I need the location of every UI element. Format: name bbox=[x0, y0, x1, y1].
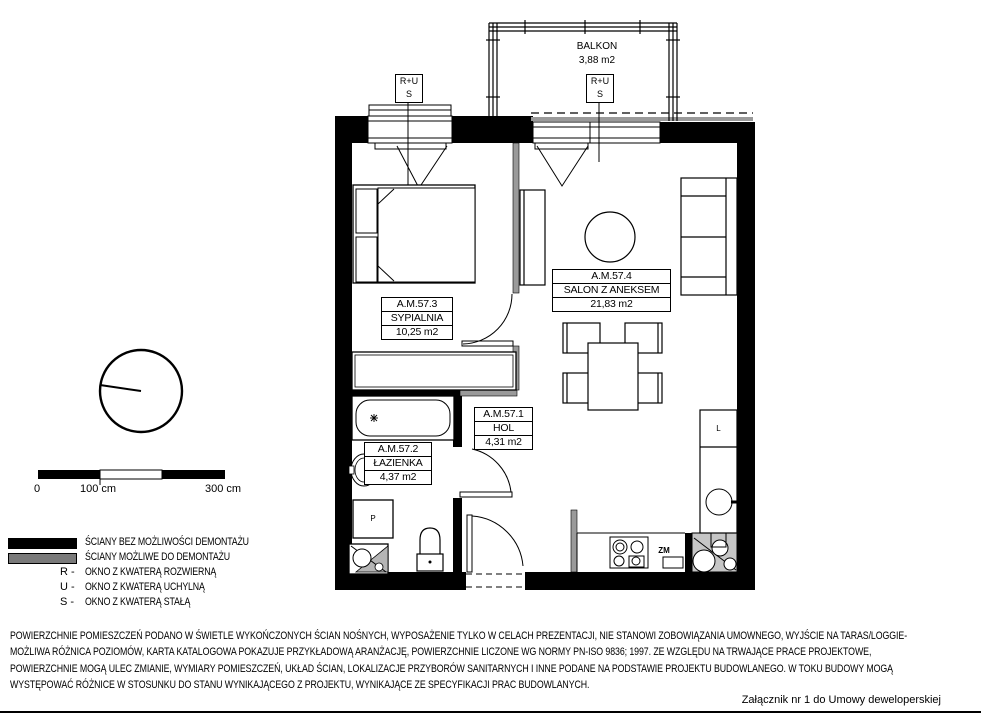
balcony-area: 3,88 m2 bbox=[555, 55, 639, 66]
bathtub bbox=[352, 396, 454, 440]
legend-text-r: OKNO Z KWATERĄ ROZWIERNĄ bbox=[85, 566, 216, 578]
balcony-label: BALKON bbox=[555, 41, 639, 52]
scale-label-100: 100 cm bbox=[80, 483, 116, 495]
attachment-note: Załącznik nr 1 do Umowy deweloperskiej bbox=[735, 694, 941, 706]
bedroom-window bbox=[368, 105, 452, 149]
room-id: A.M.57.4 bbox=[553, 270, 670, 283]
window-tag-left-bottom: S bbox=[396, 88, 422, 101]
room-area: 4,37 m2 bbox=[365, 470, 431, 484]
room-id: A.M.57.2 bbox=[365, 443, 431, 456]
room-name: HOL bbox=[475, 421, 532, 435]
balcony-railing bbox=[486, 20, 680, 121]
disclaimer-line-4: WYSTĘPOWAĆ RÓŻNICE W STOSUNKU DO STANU W… bbox=[10, 679, 589, 691]
dining-set bbox=[563, 323, 662, 410]
bedroom-door bbox=[462, 294, 513, 346]
legend-key-s: S - bbox=[60, 596, 74, 608]
room-label-hall: A.M.57.1 HOL 4,31 m2 bbox=[474, 407, 533, 450]
round-table bbox=[585, 212, 635, 262]
disclaimer-line-2: MOŻLIWA RÓŻNICA POZIOMÓW, KARTA KATALOGO… bbox=[10, 646, 871, 658]
scale-label-0: 0 bbox=[34, 483, 40, 495]
shower bbox=[349, 544, 388, 574]
legend-removable-wall-text: ŚCIANY MOŻLIWE DO DEMONTAŻU bbox=[85, 551, 230, 563]
toilet bbox=[417, 528, 443, 571]
room-name: SYPIALNIA bbox=[382, 311, 452, 325]
floor-plan-page: BALKON 3,88 m2 R+U S R+U S A.M.57.3 SYPI… bbox=[0, 0, 981, 722]
disclaimer-line-3: POWIERZCHNIE MOGĄ ULEC ZMIANIE, WYMIARY … bbox=[10, 663, 893, 675]
legend-key-u: U - bbox=[60, 581, 75, 593]
room-label-bathroom: A.M.57.2 ŁAZIENKA 4,37 m2 bbox=[364, 442, 432, 485]
legend-text-u: OKNO Z KWATERĄ UCHYLNĄ bbox=[85, 581, 205, 593]
legend-swatch-removable-wall bbox=[8, 553, 77, 564]
window-tag-left-top: R+U bbox=[396, 75, 422, 88]
balcony-slab-strip bbox=[531, 117, 753, 121]
scale-label-300: 300 cm bbox=[205, 483, 241, 495]
room-id: A.M.57.1 bbox=[475, 408, 532, 421]
dishwasher-label: ZM bbox=[652, 546, 676, 556]
room-id: A.M.57.3 bbox=[382, 298, 452, 311]
fridge-label: L bbox=[700, 411, 737, 447]
room-label-bedroom: A.M.57.3 SYPIALNIA 10,25 m2 bbox=[381, 297, 453, 340]
washing-machine-label: P bbox=[353, 500, 393, 538]
legend-swatch-solid-wall bbox=[8, 538, 77, 549]
room-name: ŁAZIENKA bbox=[365, 456, 431, 470]
room-label-living: A.M.57.4 SALON Z ANEKSEM 21,83 m2 bbox=[552, 269, 671, 312]
bathroom-door bbox=[460, 449, 512, 497]
entry-door bbox=[466, 515, 525, 587]
window-tag-right: R+U S bbox=[586, 74, 614, 103]
compass bbox=[100, 350, 182, 432]
room-area: 4,31 m2 bbox=[475, 435, 532, 449]
bedroom-wardrobe bbox=[352, 352, 516, 390]
floor-plan-drawing bbox=[0, 0, 981, 722]
window-tag-right-top: R+U bbox=[587, 75, 613, 88]
dishwasher-box bbox=[663, 557, 683, 568]
scale-bar-graphic bbox=[38, 470, 225, 485]
legend-key-r: R - bbox=[60, 566, 75, 578]
room-name: SALON Z ANEKSEM bbox=[553, 283, 670, 297]
legend-text-s: OKNO Z KWATERĄ STAŁĄ bbox=[85, 596, 190, 608]
bed bbox=[353, 185, 475, 283]
living-room-window bbox=[533, 122, 660, 149]
sofa bbox=[681, 178, 737, 295]
disclaimer-line-1: POWIERZCHNIE POMIESZCZEŃ PODANO W ŚWIETL… bbox=[10, 630, 907, 642]
window-tag-left: R+U S bbox=[395, 74, 423, 103]
kitchen-sink bbox=[692, 529, 737, 572]
legend-solid-wall-text: ŚCIANY BEZ MOŻLIWOŚCI DEMONTAŻU bbox=[85, 536, 249, 548]
room-area: 21,83 m2 bbox=[553, 297, 670, 311]
footer-rule bbox=[0, 711, 981, 713]
room-area: 10,25 m2 bbox=[382, 325, 452, 339]
living-room-wardrobe bbox=[520, 190, 545, 285]
kitchen-hob bbox=[610, 537, 648, 568]
window-tag-right-bottom: S bbox=[587, 88, 613, 101]
